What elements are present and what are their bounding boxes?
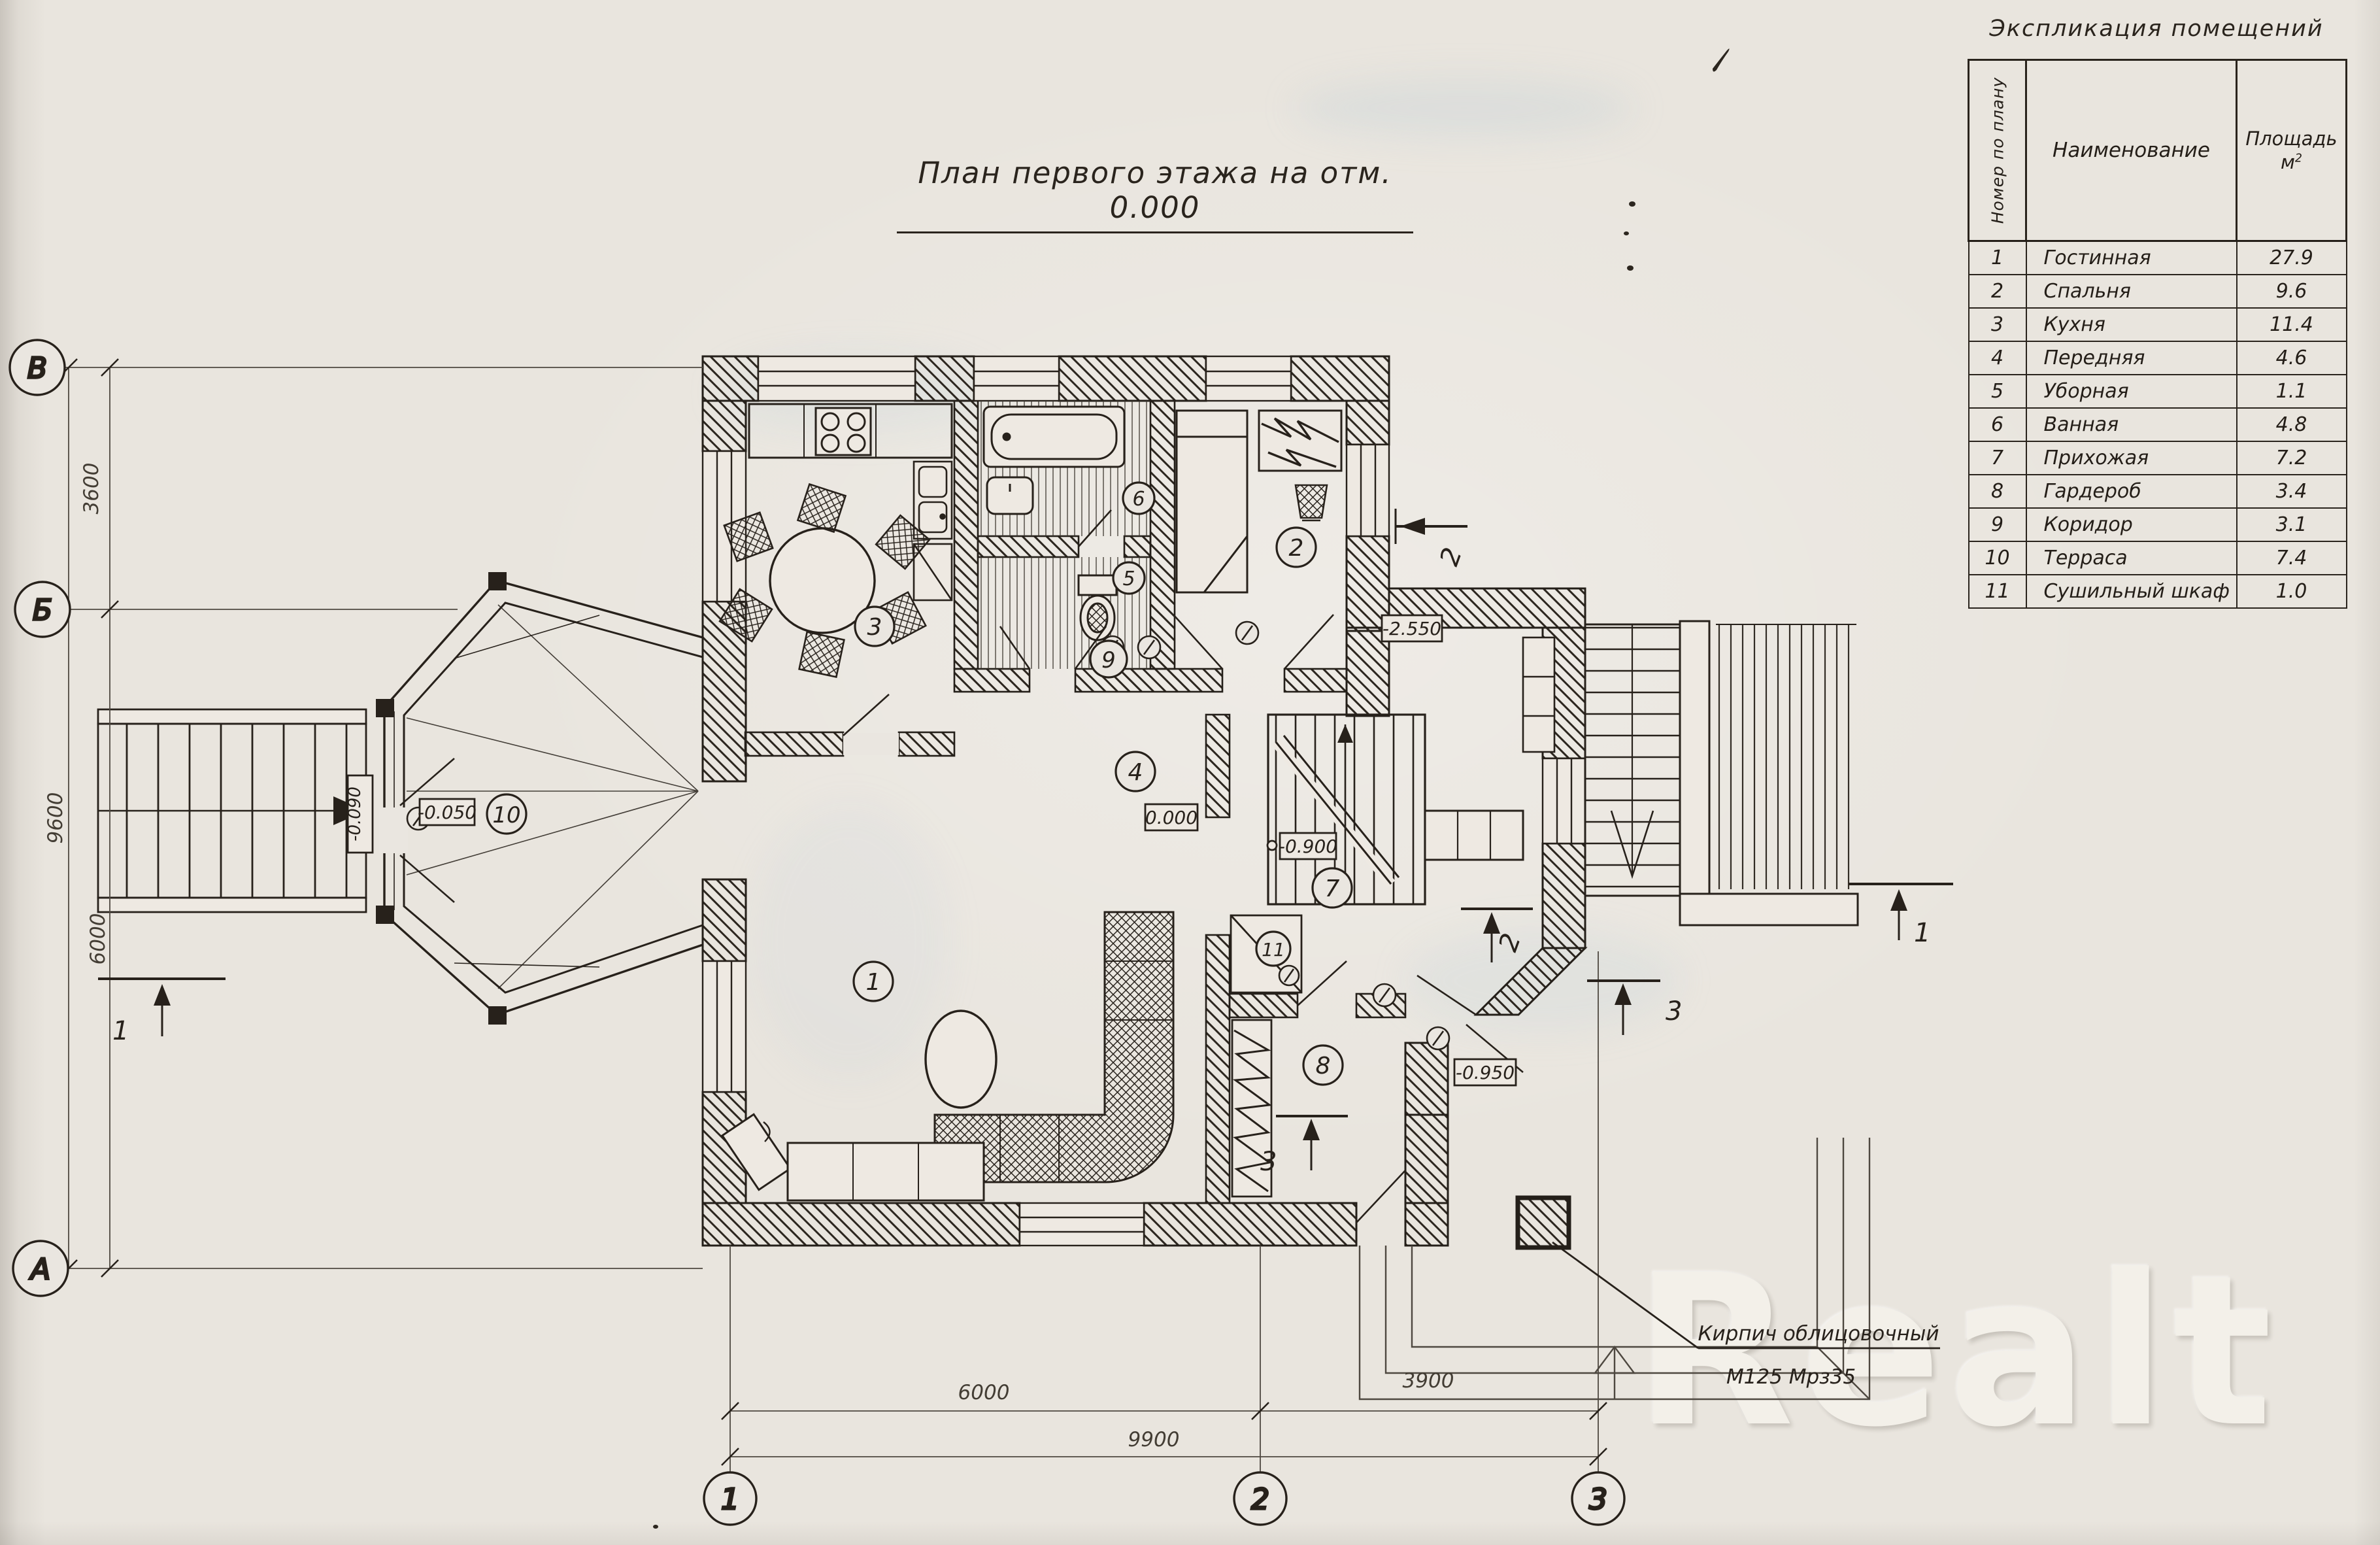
living-room-block xyxy=(722,912,1173,1200)
bedroom-block xyxy=(1177,411,1341,592)
brick-annotation-line1: Кирпич облицовочный xyxy=(1698,1322,1939,1346)
cabinet-icon xyxy=(788,1143,984,1200)
section-marker-2-right: 2 xyxy=(1461,909,1533,962)
stool-icon xyxy=(1296,485,1327,520)
shelf-icon xyxy=(1523,637,1554,752)
bed-icon xyxy=(1177,411,1247,592)
porch-step-arrow xyxy=(1595,1347,1634,1399)
internal-stair xyxy=(1268,715,1523,904)
section-marker-3-left: 3 xyxy=(1260,1116,1348,1177)
svg-text:7: 7 xyxy=(1325,875,1340,902)
elevation-floor: 0.000 xyxy=(1145,804,1198,830)
dim-6000-bottom: 6000 xyxy=(958,1381,1010,1404)
dim-3600: 3600 xyxy=(80,463,103,515)
dim-9600: 9600 xyxy=(44,792,67,844)
kitchen-sink-icon xyxy=(914,462,952,539)
room-circle-4: 4 xyxy=(1116,752,1155,791)
window-icon xyxy=(974,356,1059,401)
svg-text:8: 8 xyxy=(1316,1053,1331,1079)
axis-label: 1 xyxy=(721,1483,739,1516)
room-circle-10: 10 xyxy=(487,794,526,834)
svg-text:5: 5 xyxy=(1122,568,1135,590)
axis-bubble-v: В xyxy=(10,340,65,395)
elevation-backstair: -2.550 xyxy=(1382,615,1442,641)
window-icon xyxy=(703,961,746,1092)
axis-bubble-3: 3 xyxy=(1572,1472,1624,1525)
svg-text:1: 1 xyxy=(866,969,881,996)
room-circle-6: 6 xyxy=(1123,483,1154,514)
room-circle-7: 7 xyxy=(1313,868,1352,908)
room-circle-1: 1 xyxy=(854,962,893,1001)
svg-text:2: 2 xyxy=(1289,535,1304,562)
section-marker-2-top: 2 xyxy=(1396,509,1468,569)
axis-bubble-2: 2 xyxy=(1234,1472,1286,1525)
svg-text:-0.900: -0.900 xyxy=(1279,836,1337,857)
room-circle-3: 3 xyxy=(855,607,894,646)
brick-pier-icon xyxy=(1518,1198,1569,1248)
room-circle-8: 8 xyxy=(1303,1045,1343,1085)
window-icon xyxy=(1206,356,1291,401)
terrace-fan-lines xyxy=(407,605,698,989)
room-circle-9: 9 xyxy=(1090,641,1127,677)
svg-text:3: 3 xyxy=(867,614,882,641)
svg-text:1: 1 xyxy=(112,1016,129,1046)
svg-text:4: 4 xyxy=(1128,759,1143,786)
stove-icon xyxy=(816,408,871,455)
axis-bubble-1: 1 xyxy=(704,1472,756,1525)
axis-label: А xyxy=(29,1253,50,1286)
section-marker-1-right: 1 xyxy=(1849,884,1953,948)
brick-annotation-line2: М125 Мрз35 xyxy=(1726,1365,1856,1389)
window-icon xyxy=(1347,445,1389,536)
svg-text:-0.050: -0.050 xyxy=(418,802,477,823)
door-mark-icon xyxy=(1427,1027,1449,1049)
dim-3900: 3900 xyxy=(1403,1369,1454,1393)
svg-text:3: 3 xyxy=(1666,996,1682,1027)
door-mark-icon xyxy=(1236,622,1258,644)
elevation-porch: -0.950 xyxy=(1454,1059,1516,1085)
svg-text:-2.550: -2.550 xyxy=(1383,618,1441,639)
coffee-table-icon xyxy=(926,1011,996,1108)
svg-text:2: 2 xyxy=(1493,930,1527,956)
room-circle-11: 11 xyxy=(1256,932,1290,966)
svg-text:2: 2 xyxy=(1434,544,1468,570)
room-circle-5: 5 xyxy=(1113,562,1145,594)
section-marker-1-left: 1 xyxy=(98,979,226,1046)
toilet-icon xyxy=(1079,575,1116,640)
brick-annotation: Кирпич облицовочный М125 Мрз35 xyxy=(1552,1242,1940,1389)
svg-text:1: 1 xyxy=(1914,918,1930,948)
window-icon xyxy=(1020,1203,1144,1246)
svg-text:-0.090: -0.090 xyxy=(345,787,365,841)
axis-label: 2 xyxy=(1251,1483,1269,1516)
dim-9900: 9900 xyxy=(1128,1428,1180,1452)
axis-label: Б xyxy=(33,594,52,627)
axis-bubble-b: Б xyxy=(15,582,70,637)
elevation-entry: -0.090 xyxy=(345,775,373,853)
elevation-stair: -0.900 xyxy=(1267,833,1337,859)
door-mark-icon xyxy=(1138,636,1160,658)
door-mark-icon xyxy=(1279,966,1299,985)
axis-label: В xyxy=(27,352,47,385)
window-icon xyxy=(1543,758,1585,843)
back-stair-right xyxy=(1585,621,1858,925)
svg-text:-0.950: -0.950 xyxy=(1456,1062,1515,1083)
scanned-blueprint-page: { "page": { "title": "План первого этажа… xyxy=(0,0,2380,1545)
axis-bubble-a: А xyxy=(13,1241,68,1296)
svg-text:6: 6 xyxy=(1132,488,1145,511)
entry-stair-left xyxy=(98,709,366,912)
svg-text:3: 3 xyxy=(1260,1147,1277,1177)
sink-icon xyxy=(987,477,1033,514)
section-marker-3-right: 3 xyxy=(1587,981,1682,1035)
dim-6000-left: 6000 xyxy=(86,913,110,965)
dining-table-icon xyxy=(720,484,930,677)
elevation-terrace: -0.050 xyxy=(418,799,477,825)
bathtub-icon xyxy=(984,407,1124,467)
floor-plan: В Б А 1 2 3 3600 9600 6000 6000 3900 990… xyxy=(0,0,2380,1545)
wardrobe-icon xyxy=(1259,411,1341,471)
svg-text:9: 9 xyxy=(1101,647,1116,673)
kitchen-block xyxy=(720,404,952,677)
svg-text:10: 10 xyxy=(492,802,520,828)
room-circle-2: 2 xyxy=(1277,528,1316,567)
axis-label: 3 xyxy=(1589,1483,1607,1516)
window-icon xyxy=(758,356,915,401)
svg-text:11: 11 xyxy=(1262,939,1285,960)
door-mark-icon xyxy=(1373,984,1396,1006)
svg-text:0.000: 0.000 xyxy=(1145,807,1198,828)
bathroom-block xyxy=(978,401,1150,669)
